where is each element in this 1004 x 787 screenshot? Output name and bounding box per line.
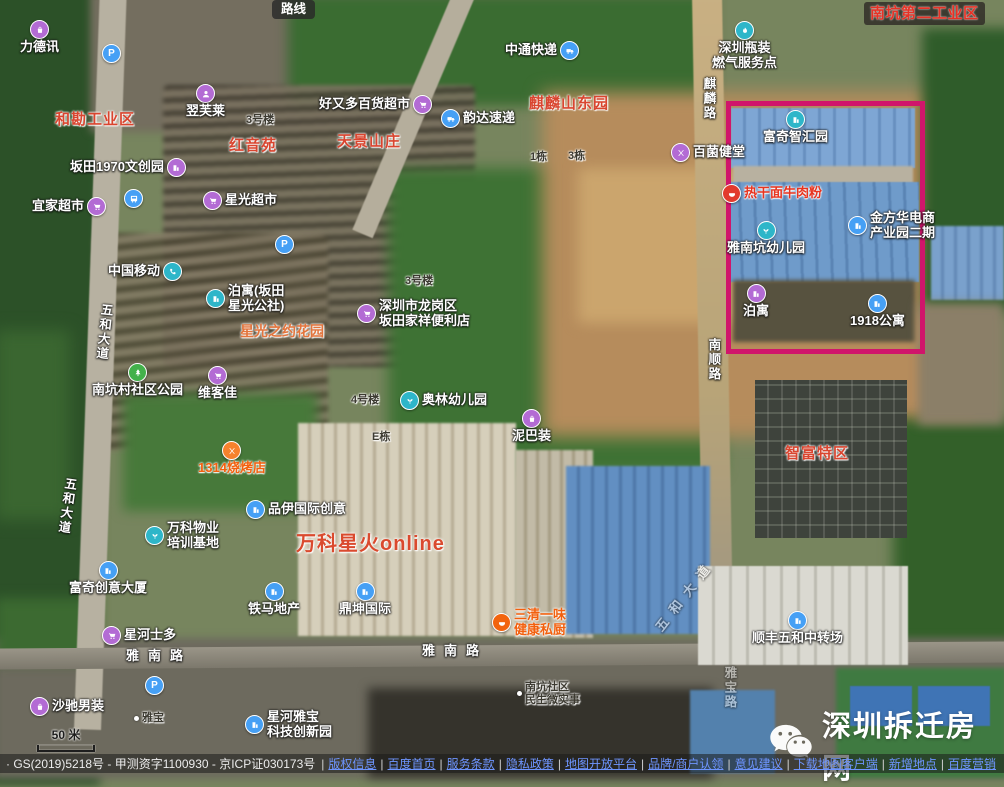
poi-nankeng-park[interactable]: 南坑村社区公园 xyxy=(92,363,183,398)
ghost-road-yabao: 雅宝路 xyxy=(722,666,736,710)
building-icon xyxy=(246,500,265,519)
scale-bar: 50 米 xyxy=(37,726,95,752)
map-label-text: 中国移动 xyxy=(108,264,160,279)
label-bldg-4hao: 4号楼 xyxy=(351,394,379,407)
map-label-text: 智富特区 xyxy=(785,445,849,462)
poi-yifulai[interactable]: 翌芙莱 xyxy=(186,84,225,119)
footer-link[interactable]: 版权信息 xyxy=(317,757,376,771)
map-label-text: 铁马地产 xyxy=(248,602,300,617)
poi-1918-apartment[interactable]: 1918公寓 xyxy=(850,294,905,329)
map-label-text: 1918公寓 xyxy=(850,314,905,329)
label-nankeng-shequ: 南坑社区民生微实事 xyxy=(517,681,580,706)
poi-xinghe-yabao[interactable]: 星河雅宝科技创新园 xyxy=(245,710,332,740)
poi-bantian-1970[interactable]: 坂田1970文创园 xyxy=(70,158,186,177)
bowl-icon xyxy=(722,184,741,203)
food-icon xyxy=(222,441,241,460)
parking-icon-3[interactable]: P xyxy=(145,676,164,695)
poi-vanke-property[interactable]: 万科物业培训基地 xyxy=(145,521,219,551)
label-nankeng-second-industrial: 南坑第二工业区 xyxy=(864,2,985,25)
person-icon xyxy=(196,84,215,103)
map-label-text: 3号楼 xyxy=(405,275,433,288)
license-text: · GS(2019)5218号 - 甲测资字1100930 - 京ICP证030… xyxy=(6,755,315,772)
poi-boyu[interactable]: 泊寓 xyxy=(743,284,769,319)
cart-icon xyxy=(87,197,106,216)
map-label-text: 中通快递 xyxy=(505,43,557,58)
map-label-text: 万科物业培训基地 xyxy=(167,521,219,551)
footer-link[interactable]: 品牌/商户认领 xyxy=(637,757,723,771)
poi-baijun[interactable]: 百菌健堂 xyxy=(671,143,745,162)
map-label-text: 翌芙莱 xyxy=(186,104,225,119)
map-label-text: 麒麟山东园 xyxy=(529,95,609,112)
map-label-text: 雅南路 xyxy=(126,649,192,664)
flame-icon xyxy=(735,21,754,40)
poi-1314-bbq[interactable]: 1314烧烤店 xyxy=(198,441,266,476)
map-label-text: 奥林幼儿园 xyxy=(422,393,487,408)
route-chip[interactable]: 路线 xyxy=(272,0,315,19)
brand-watermark-text: 深圳拆迁房网 xyxy=(822,703,1004,787)
poi-dingkun[interactable]: 鼎坤国际 xyxy=(339,582,391,617)
road-yanan-2: 雅南路 xyxy=(422,644,488,659)
label-bldg-3hao-b: 3号楼 xyxy=(405,275,433,288)
map-label-text: 雅南坑幼儿园 xyxy=(727,241,805,256)
cart-icon xyxy=(208,366,227,385)
poi-yijia[interactable]: 宜家超市 xyxy=(32,197,106,216)
map-label-text: 和勘工业区 xyxy=(55,111,135,128)
map-canvas[interactable]: 路线力德讯P中通快递深圳瓶装燃气服务点南坑第二工业区和勘工业区翌芙莱好又多百货超… xyxy=(0,0,1004,773)
parking-icon: P xyxy=(145,676,164,695)
building-icon xyxy=(356,582,375,601)
poi-gas-service[interactable]: 深圳瓶装燃气服务点 xyxy=(712,21,777,71)
footer-link[interactable]: 下载地图客户端 xyxy=(783,757,878,771)
map-label-text: 泊寓(坂田星光公社) xyxy=(228,284,284,314)
brand-watermark: 深圳拆迁房网 xyxy=(768,703,1004,787)
building-icon xyxy=(245,715,264,734)
truck-icon xyxy=(441,109,460,128)
plant-icon xyxy=(145,526,164,545)
map-label-text: 坂田1970文创园 xyxy=(70,160,164,175)
terrain-patch xyxy=(566,466,710,634)
poi-nibazhuang[interactable]: 泥巴装 xyxy=(512,409,551,444)
bowl-icon xyxy=(492,613,511,632)
footer-link[interactable]: 百度营销 xyxy=(937,757,996,771)
poi-tiema[interactable]: 铁马地产 xyxy=(248,582,300,617)
map-label-text: 雅南路 xyxy=(422,644,488,659)
map-label-text: 三清一味健康私厨 xyxy=(514,608,566,638)
bus-icon xyxy=(124,189,143,208)
poi-dot-icon xyxy=(517,691,522,696)
road-yanan-1: 雅南路 xyxy=(126,649,192,664)
footer-link[interactable]: 百度首页 xyxy=(376,757,435,771)
map-label-text: 路线 xyxy=(281,2,306,16)
map-label-text: 3号楼 xyxy=(246,114,274,127)
map-label-text: 维客佳 xyxy=(198,386,237,401)
food-icon xyxy=(671,143,690,162)
footer-link[interactable]: 服务条款 xyxy=(436,757,495,771)
poi-haoyouduo[interactable]: 好又多百货超市 xyxy=(319,95,432,114)
parking-icon: P xyxy=(102,44,121,63)
bag-icon xyxy=(522,409,541,428)
map-label-text: 星河士多 xyxy=(124,628,176,643)
map-label-text: 百菌健堂 xyxy=(693,145,745,160)
cart-icon xyxy=(413,95,432,114)
poi-lidexun[interactable]: 力德讯 xyxy=(20,20,59,55)
scale-line xyxy=(37,745,95,752)
footer-links: 版权信息百度首页服务条款隐私政策地图开放平台品牌/商户认领意见建议下载地图客户端… xyxy=(317,755,996,772)
bag-icon xyxy=(30,20,49,39)
metro-icon[interactable] xyxy=(124,189,143,208)
area-vanke-online: 万科星火online xyxy=(296,533,445,556)
map-label-text: 南顺路 xyxy=(706,338,720,382)
poi-jiaxiang-store[interactable]: 深圳市龙岗区坂田家祥便利店 xyxy=(357,299,470,329)
map-label-text: 1栋 xyxy=(530,151,547,164)
map-label-text: 1314烧烤店 xyxy=(198,461,266,476)
poi-yanankeng-kindergarten[interactable]: 雅南坑幼儿园 xyxy=(727,221,805,256)
parking-icon: P xyxy=(275,235,294,254)
phone-icon xyxy=(163,262,182,281)
area-tianjing: 天景山庄 xyxy=(337,133,401,150)
area-hongyinyuan: 红音苑 xyxy=(229,137,277,154)
map-label-text: 富奇智汇园 xyxy=(763,130,828,145)
map-label-text: 雅宝 xyxy=(142,712,164,725)
map-label-text: 富奇创意大厦 xyxy=(69,581,147,596)
plant-icon xyxy=(400,391,419,410)
footer-link[interactable]: 地图开放平台 xyxy=(554,757,637,771)
map-label-text: 泥巴装 xyxy=(512,429,551,444)
building-icon xyxy=(747,284,766,303)
poi-china-mobile[interactable]: 中国移动 xyxy=(108,262,182,281)
map-label-text: 好又多百货超市 xyxy=(319,97,410,112)
poi-xinghe-store[interactable]: 星河士多 xyxy=(102,626,176,645)
parking-icon-1[interactable]: P xyxy=(102,44,121,63)
map-label-text: 4号楼 xyxy=(351,394,379,407)
map-label-text: 力德讯 xyxy=(20,40,59,55)
building-icon xyxy=(788,611,807,630)
map-label-text: 星光之约花园 xyxy=(240,323,324,339)
footer-link[interactable]: 新增地点 xyxy=(878,757,937,771)
poi-aolin-kindergarten[interactable]: 奥林幼儿园 xyxy=(400,391,487,410)
cart-icon xyxy=(357,304,376,323)
map-label-text: 鼎坤国际 xyxy=(339,602,391,617)
map-label-text: 沙驰男装 xyxy=(52,699,104,714)
map-label-text: 泊寓 xyxy=(743,304,769,319)
cart-icon xyxy=(203,191,222,210)
poi-reganmian[interactable]: 热干面牛肉粉 xyxy=(722,184,822,203)
map-label-text: 红音苑 xyxy=(229,137,277,154)
area-xingguang-zhiyue: 星光之约花园 xyxy=(240,323,324,339)
map-label-text: 热干面牛肉粉 xyxy=(744,186,822,201)
map-label-text: 顺丰五和中转场 xyxy=(752,631,843,646)
scale-label: 50 米 xyxy=(52,728,81,742)
map-label-text: 3栋 xyxy=(568,150,585,163)
poi-yunda-express[interactable]: 韵达速递 xyxy=(441,109,515,128)
area-zhifu: 智富特区 xyxy=(785,445,849,462)
area-qilin-east: 麒麟山东园 xyxy=(529,95,609,112)
building-icon xyxy=(99,561,118,580)
map-label-text: 南坑第二工业区 xyxy=(870,5,979,22)
map-label-text: 金方华电商产业园二期 xyxy=(870,211,935,241)
building-icon xyxy=(265,582,284,601)
label-bldg-1dong: 1栋 xyxy=(530,151,547,164)
bag-icon xyxy=(30,697,49,716)
map-label-text: 品伊国际创意 xyxy=(268,502,346,517)
map-label-text: 深圳市龙岗区坂田家祥便利店 xyxy=(379,299,470,329)
poi-boyu-xingguang[interactable]: 泊寓(坂田星光公社) xyxy=(206,284,284,314)
map-label-text: 星河雅宝科技创新园 xyxy=(267,710,332,740)
terrain-patch xyxy=(931,226,1004,300)
cart-icon xyxy=(102,626,121,645)
map-label-text: 南坑社区民生微实事 xyxy=(525,681,580,706)
map-label-text: 万科星火online xyxy=(296,533,445,556)
road-qilin: 麒麟路 xyxy=(701,77,715,121)
poi-fuqi-zhihui[interactable]: 富奇智汇园 xyxy=(763,110,828,145)
terrain-patch xyxy=(893,418,1004,653)
label-yabao: 雅宝 xyxy=(134,712,164,725)
map-label-text: 雅宝路 xyxy=(722,666,736,710)
map-label-text: 麒麟路 xyxy=(701,77,715,121)
map-label-text: 深圳瓶装燃气服务点 xyxy=(712,41,777,71)
building-icon xyxy=(786,110,805,129)
poi-sf-transfer[interactable]: 顺丰五和中转场 xyxy=(752,611,843,646)
parking-icon-2[interactable]: P xyxy=(275,235,294,254)
poi-zhongtong-express[interactable]: 中通快递 xyxy=(505,41,579,60)
footer-link[interactable]: 隐私政策 xyxy=(495,757,554,771)
building-icon xyxy=(206,289,225,308)
poi-weikejia[interactable]: 维客佳 xyxy=(198,366,237,401)
road-nanshun: 南顺路 xyxy=(706,338,720,382)
map-label-text: 南坑村社区公园 xyxy=(92,383,183,398)
poi-jinfanghua[interactable]: 金方华电商产业园二期 xyxy=(848,211,935,241)
terrain-patch xyxy=(918,303,1004,425)
poi-shachi[interactable]: 沙驰男装 xyxy=(30,697,104,716)
terrain-patch xyxy=(298,423,516,636)
label-bldg-3dong: 3栋 xyxy=(568,150,585,163)
label-bldg-3hao-a: 3号楼 xyxy=(246,114,274,127)
poi-xingguang-market[interactable]: 星光超市 xyxy=(203,191,277,210)
building-icon xyxy=(868,294,887,313)
map-label-text: 星光超市 xyxy=(225,193,277,208)
area-hekan-industrial: 和勘工业区 xyxy=(55,111,135,128)
terrain-patch xyxy=(0,330,70,520)
building-icon xyxy=(167,158,186,177)
label-bldg-e: E栋 xyxy=(372,431,390,444)
truck-icon xyxy=(560,41,579,60)
map-label-text: 天景山庄 xyxy=(337,133,401,150)
building-icon xyxy=(848,216,867,235)
poi-sanqing[interactable]: 三清一味健康私厨 xyxy=(492,608,566,638)
tree-icon xyxy=(128,363,147,382)
map-label-text: 宜家超市 xyxy=(32,199,84,214)
map-label-text: E栋 xyxy=(372,431,390,444)
poi-fuqi-tower[interactable]: 富奇创意大厦 xyxy=(69,561,147,596)
plant-icon xyxy=(757,221,776,240)
poi-pinyi[interactable]: 品伊国际创意 xyxy=(246,500,346,519)
map-label-text: 韵达速递 xyxy=(463,111,515,126)
attribution-bar: · GS(2019)5218号 - 甲测资字1100930 - 京ICP证030… xyxy=(0,754,1004,773)
poi-dot-icon xyxy=(134,716,139,721)
footer-link[interactable]: 意见建议 xyxy=(723,757,782,771)
